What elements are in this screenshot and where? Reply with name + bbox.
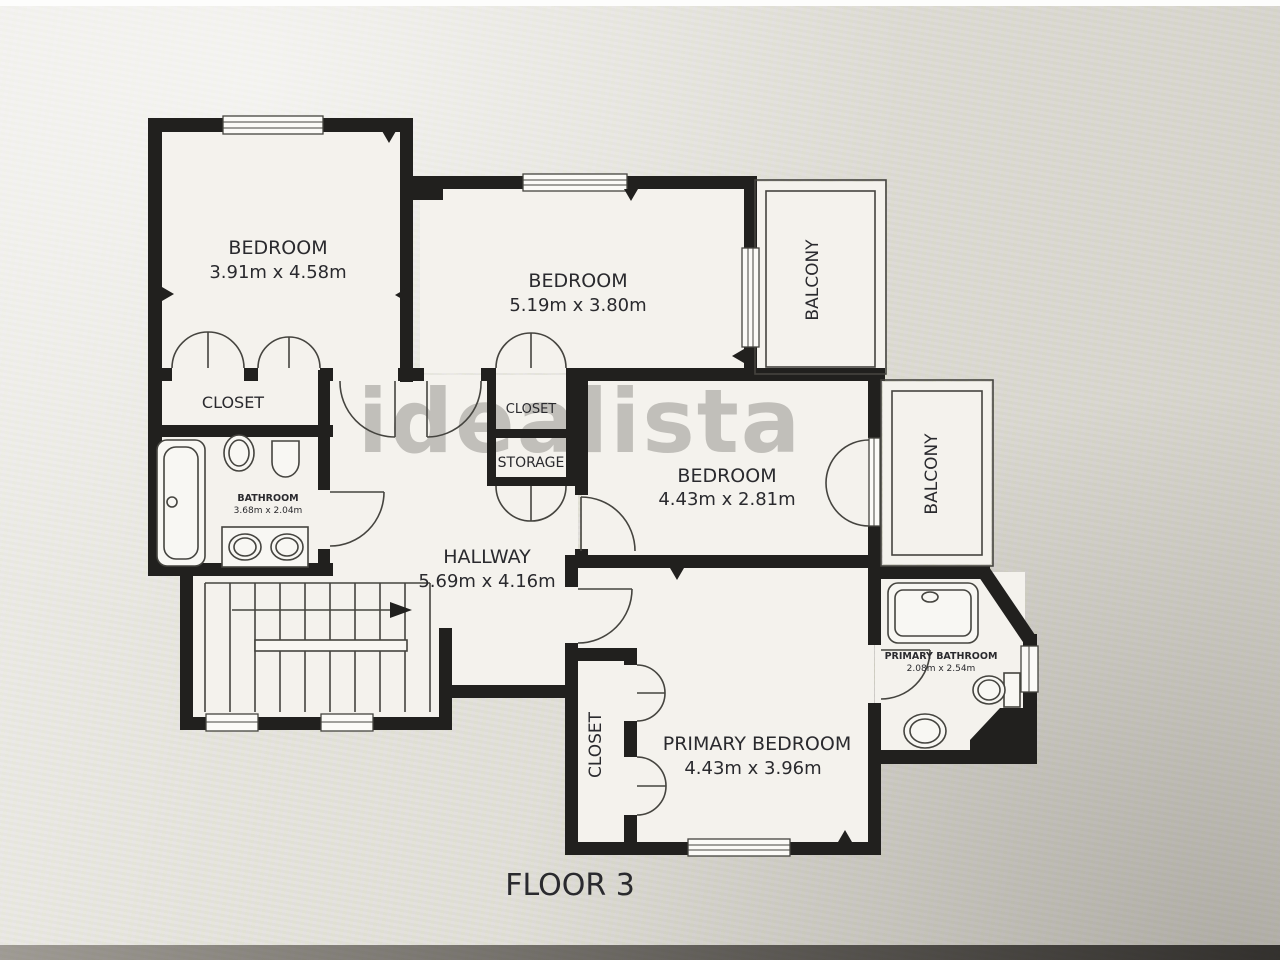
room-dims-bedroom-top-left: 3.91m x 4.58m [209, 262, 346, 283]
bidet-icon [904, 714, 946, 748]
window [742, 248, 759, 347]
window [321, 714, 373, 731]
window [869, 438, 880, 526]
double-sink-vanity-icon [222, 527, 308, 567]
window [206, 714, 258, 731]
room-label-balcony-top: BALCONY [803, 239, 823, 321]
room-label-closet-middle: CLOSET [506, 402, 557, 417]
room-dims-bedroom-top-middle: 5.19m x 3.80m [509, 295, 646, 316]
room-dims-primary-bathroom: 2.08m x 2.54m [907, 664, 976, 674]
room-label-storage: STORAGE [498, 455, 565, 471]
room-label-closet-primary: CLOSET [586, 711, 606, 778]
bathtub-icon [888, 583, 978, 643]
room-label-bathroom: BATHROOM [237, 493, 298, 504]
room-label-primary-bedroom: PRIMARY BEDROOM [663, 733, 851, 755]
room-label-primary-bathroom: PRIMARY BATHROOM [885, 651, 998, 662]
bathtub-icon [157, 440, 205, 566]
room-label-hallway: HALLWAY [443, 546, 531, 568]
window [223, 116, 323, 134]
room-label-balcony-right: BALCONY [922, 433, 942, 515]
room-dims-bathroom: 3.68m x 2.04m [234, 506, 303, 516]
room-dims-primary-bedroom: 4.43m x 3.96m [684, 758, 821, 779]
bidet-icon [272, 441, 299, 477]
room-label-closet-left: CLOSET [202, 393, 264, 412]
room-dims-hallway: 5.69m x 4.16m [418, 571, 555, 592]
room-label-bedroom-top-left: BEDROOM [228, 237, 327, 259]
floor-title: FLOOR 3 [505, 868, 635, 903]
window [688, 839, 790, 856]
toilet-icon [973, 673, 1020, 707]
window [523, 174, 627, 191]
room-dims-bedroom-middle-right: 4.43m x 2.81m [658, 489, 795, 510]
window [1021, 646, 1038, 692]
photo-bottom-edge [0, 945, 1280, 960]
floorplan-image: idealista [0, 0, 1280, 960]
toilet-icon [224, 435, 254, 471]
room-label-bedroom-top-middle: BEDROOM [528, 270, 627, 292]
room-label-bedroom-middle-right: BEDROOM [677, 465, 776, 487]
